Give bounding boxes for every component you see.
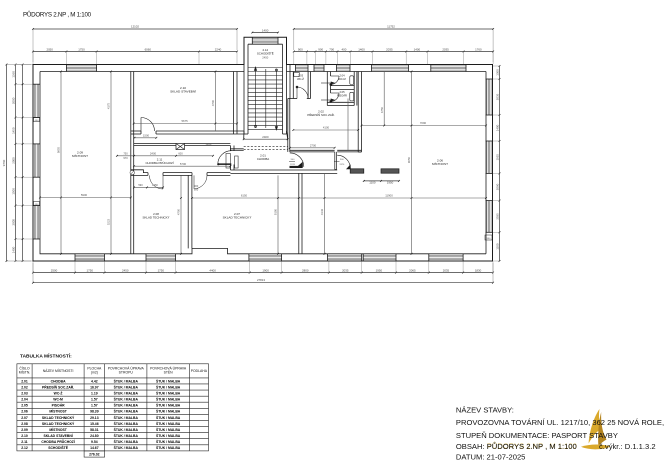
svg-text:2690: 2690 — [206, 143, 212, 147]
svg-text:2.04: 2.04 — [21, 398, 28, 402]
svg-text:58.31: 58.31 — [90, 428, 99, 432]
svg-text:MÍSTNOST: MÍSTNOST — [432, 162, 448, 166]
svg-text:ŠTUK / MALBA: ŠTUK / MALBA — [156, 415, 181, 420]
svg-text:2400: 2400 — [150, 151, 157, 155]
svg-text:2400: 2400 — [262, 135, 269, 139]
svg-text:2.06: 2.06 — [21, 410, 28, 414]
svg-text:1900: 1900 — [262, 268, 269, 272]
svg-text:2.03: 2.03 — [21, 391, 28, 395]
svg-text:2.03: 2.03 — [298, 74, 304, 78]
svg-text:1300: 1300 — [495, 69, 499, 76]
svg-text:ŠTUK / MALBA: ŠTUK / MALBA — [114, 409, 139, 414]
svg-text:STĚN: STĚN — [164, 370, 174, 375]
svg-text:1950: 1950 — [376, 268, 383, 272]
svg-text:SCHODIŠTĚ: SCHODIŠTĚ — [257, 51, 274, 56]
svg-text:2500: 2500 — [51, 268, 58, 272]
svg-text:276.02: 276.02 — [89, 453, 99, 457]
svg-text:2800: 2800 — [302, 268, 309, 272]
svg-text:15.46: 15.46 — [90, 422, 99, 426]
svg-text:2.07: 2.07 — [21, 416, 28, 420]
svg-text:ŠTUK / MALBA: ŠTUK / MALBA — [114, 439, 139, 444]
svg-text:9855: 9855 — [57, 146, 61, 153]
svg-text:1400: 1400 — [414, 47, 421, 51]
svg-text:16.97: 16.97 — [90, 385, 99, 389]
svg-text:ŠTUK / MALBA: ŠTUK / MALBA — [156, 403, 181, 408]
svg-text:2035: 2035 — [443, 268, 450, 272]
svg-text:4.42: 4.42 — [91, 379, 98, 383]
svg-text:2035: 2035 — [442, 47, 449, 51]
svg-text:2065: 2065 — [409, 268, 416, 272]
svg-text:2050: 2050 — [46, 47, 53, 51]
svg-text:ŠTUK / MALBA: ŠTUK / MALBA — [114, 384, 139, 389]
svg-text:č.výkr.: D.1.1.3.2: č.výkr.: D.1.1.3.2 — [599, 442, 656, 451]
svg-text:(m2): (m2) — [91, 371, 98, 375]
svg-text:STUPEŇ DOKUMENTACE: PASPORT ST: STUPEŇ DOKUMENTACE: PASPORT STAVBY — [456, 431, 618, 440]
svg-text:11900: 11900 — [385, 194, 393, 198]
svg-text:1400: 1400 — [495, 124, 499, 131]
svg-text:CHODBA: CHODBA — [51, 379, 66, 383]
svg-text:24.80: 24.80 — [90, 434, 99, 438]
svg-text:2.05: 2.05 — [21, 404, 28, 408]
svg-text:ŠTUK / MALBA: ŠTUK / MALBA — [156, 445, 181, 450]
svg-text:2.01: 2.01 — [21, 379, 28, 383]
svg-text:6150: 6150 — [241, 194, 248, 198]
svg-text:9.54: 9.54 — [91, 440, 98, 444]
svg-text:MÍSTNOST: MÍSTNOST — [49, 409, 67, 414]
svg-text:ŠTUK / MALBA: ŠTUK / MALBA — [114, 427, 139, 432]
svg-text:4143: 4143 — [320, 208, 324, 215]
svg-text:5675: 5675 — [181, 119, 188, 123]
svg-text:900: 900 — [318, 47, 323, 51]
svg-text:1100: 1100 — [495, 243, 499, 250]
svg-text:SKLAD TECHNICKÝ: SKLAD TECHNICKÝ — [223, 216, 252, 220]
svg-text:ŠTUK / MALBA: ŠTUK / MALBA — [156, 439, 181, 444]
svg-text:2700: 2700 — [310, 144, 317, 148]
svg-text:PŘEDSÍŇ SOC.ZAŘ.: PŘEDSÍŇ SOC.ZAŘ. — [307, 112, 335, 117]
svg-text:1260: 1260 — [11, 71, 15, 78]
svg-text:1760: 1760 — [475, 47, 482, 51]
svg-text:ŠTUK / MALBA: ŠTUK / MALBA — [114, 397, 139, 402]
svg-text:900: 900 — [298, 47, 303, 51]
svg-text:PŘEDSÍŇ SOC.ZAŘ.: PŘEDSÍŇ SOC.ZAŘ. — [42, 384, 74, 389]
svg-text:4700: 4700 — [211, 99, 215, 106]
svg-text:970: 970 — [123, 156, 128, 160]
svg-text:SKLAD STAVEBNÍ: SKLAD STAVEBNÍ — [43, 433, 73, 438]
svg-text:2060: 2060 — [495, 183, 499, 190]
svg-text:ŠTUK / MALBA: ŠTUK / MALBA — [156, 409, 181, 414]
svg-text:1925: 1925 — [495, 154, 499, 161]
svg-text:9760: 9760 — [2, 159, 6, 166]
svg-text:1970: 1970 — [290, 164, 296, 166]
svg-text:SKLAD TECHNICKÝ: SKLAD TECHNICKÝ — [42, 415, 75, 420]
svg-text:DATUM: 21-07-2025: DATUM: 21-07-2025 — [456, 453, 526, 462]
svg-text:29.13: 29.13 — [90, 416, 99, 420]
svg-text:ŠTUK / MALBA: ŠTUK / MALBA — [114, 445, 139, 450]
svg-text:2.05: 2.05 — [339, 90, 345, 94]
svg-text:WC-M: WC-M — [53, 398, 63, 402]
svg-text:ŠTUK / MALBA: ŠTUK / MALBA — [156, 427, 181, 432]
svg-text:MÍSTNOST: MÍSTNOST — [72, 154, 88, 158]
svg-text:ŠTUK / MALBA: ŠTUK / MALBA — [114, 415, 139, 420]
svg-text:PROVOZOVNA TOVÁRNÍ UL. 1217/10: PROVOZOVNA TOVÁRNÍ UL. 1217/10, 362 25 N… — [456, 418, 664, 427]
svg-text:WC-M: WC-M — [338, 77, 345, 81]
svg-text:2000: 2000 — [11, 219, 15, 226]
svg-text:2.10: 2.10 — [21, 434, 28, 438]
svg-text:1950: 1950 — [387, 181, 394, 185]
svg-text:2035: 2035 — [386, 47, 393, 51]
svg-text:OBSAH: PŮDORYS 2.NP , M 1:100: OBSAH: PŮDORYS 2.NP , M 1:100 — [456, 442, 577, 451]
svg-text:2.12: 2.12 — [21, 446, 28, 450]
svg-text:1.57: 1.57 — [91, 398, 98, 402]
svg-text:1.19: 1.19 — [91, 391, 98, 395]
svg-text:ŠTUK / MALBA: ŠTUK / MALBA — [114, 378, 139, 383]
svg-text:750: 750 — [123, 151, 128, 155]
svg-text:ŠTUK / MALBA: ŠTUK / MALBA — [114, 403, 139, 408]
svg-text:NÁZEV STAVBY:: NÁZEV STAVBY: — [456, 405, 514, 414]
svg-text:1500: 1500 — [11, 188, 15, 195]
svg-text:NÁZEV MÍSTNOSTI: NÁZEV MÍSTNOSTI — [43, 369, 74, 373]
svg-text:STROPU: STROPU — [119, 371, 134, 375]
svg-text:1100: 1100 — [369, 181, 376, 185]
svg-text:900: 900 — [194, 187, 199, 191]
svg-text:98.39: 98.39 — [90, 410, 99, 414]
svg-text:590: 590 — [138, 183, 143, 187]
svg-text:MÍSTN.: MÍSTN. — [19, 371, 31, 375]
svg-text:SKLAD TECHNICKÝ: SKLAD TECHNICKÝ — [42, 421, 75, 426]
svg-text:700: 700 — [329, 47, 334, 51]
svg-text:4400: 4400 — [209, 268, 216, 272]
svg-text:1970: 1970 — [339, 164, 345, 166]
svg-text:1450: 1450 — [152, 183, 158, 187]
svg-text:7090: 7090 — [420, 121, 427, 125]
svg-text:2.11: 2.11 — [21, 440, 28, 444]
svg-text:2000: 2000 — [11, 97, 15, 104]
svg-text:6060: 6060 — [145, 47, 152, 51]
svg-text:2450: 2450 — [262, 55, 268, 59]
svg-text:ŠTUK / MALBA: ŠTUK / MALBA — [156, 390, 181, 395]
svg-text:CHODBA PRŮCHOZÍ: CHODBA PRŮCHOZÍ — [145, 160, 173, 165]
svg-text:2450: 2450 — [122, 268, 129, 272]
svg-text:4175: 4175 — [107, 102, 111, 109]
svg-text:CHODBA: CHODBA — [257, 157, 269, 161]
svg-text:SKLAD STAVEBNÍ: SKLAD STAVEBNÍ — [170, 90, 196, 94]
svg-text:2240: 2240 — [215, 47, 222, 51]
svg-text:ŠTUK / MALBA: ŠTUK / MALBA — [156, 384, 181, 389]
svg-text:2035: 2035 — [495, 213, 499, 220]
svg-text:ŠTUK / MALBA: ŠTUK / MALBA — [114, 421, 139, 426]
svg-text:2035: 2035 — [495, 93, 499, 100]
svg-text:1450: 1450 — [11, 127, 15, 134]
svg-text:2.09: 2.09 — [21, 428, 28, 432]
svg-text:PŮDORYS 2.NP , M 1:100: PŮDORYS 2.NP , M 1:100 — [23, 11, 92, 18]
svg-text:ŠTUK / MALBA: ŠTUK / MALBA — [156, 433, 181, 438]
svg-text:11752: 11752 — [387, 24, 395, 28]
svg-text:12102: 12102 — [131, 24, 139, 28]
svg-text:5900: 5900 — [81, 193, 88, 197]
svg-text:2.02: 2.02 — [21, 385, 28, 389]
svg-text:PISOÁR: PISOÁR — [337, 94, 347, 98]
svg-text:SKLAD TECHNICKÝ: SKLAD TECHNICKÝ — [143, 216, 170, 220]
svg-text:ŠTUK / MALBA: ŠTUK / MALBA — [156, 378, 181, 383]
svg-text:PODLAHA: PODLAHA — [191, 369, 208, 373]
svg-text:600: 600 — [178, 151, 183, 155]
svg-text:6750: 6750 — [380, 106, 384, 113]
svg-text:1750: 1750 — [87, 268, 94, 272]
svg-text:1.57: 1.57 — [91, 404, 98, 408]
svg-text:WC-Ž: WC-Ž — [54, 390, 63, 395]
svg-text:400: 400 — [342, 47, 347, 51]
svg-text:ŠTUK / MALBA: ŠTUK / MALBA — [156, 397, 181, 402]
svg-text:ŠTUK / MALBA: ŠTUK / MALBA — [156, 421, 181, 426]
svg-text:1830: 1830 — [475, 268, 482, 272]
svg-text:1400: 1400 — [262, 28, 269, 32]
svg-text:ŠTUK / MALBA: ŠTUK / MALBA — [114, 390, 139, 395]
svg-text:4100: 4100 — [323, 126, 330, 130]
svg-text:CHODBA PRŮCHOZÍ: CHODBA PRŮCHOZÍ — [41, 439, 75, 444]
svg-text:1400: 1400 — [11, 246, 15, 253]
svg-text:9050: 9050 — [407, 156, 411, 163]
svg-text:SCHODIŠTĚ: SCHODIŠTĚ — [48, 445, 69, 450]
svg-text:PISOÁR: PISOÁR — [52, 403, 66, 408]
svg-text:2.08: 2.08 — [21, 422, 28, 426]
svg-text:1750: 1750 — [78, 47, 85, 51]
svg-text:1500: 1500 — [143, 134, 150, 138]
svg-text:2.04: 2.04 — [339, 74, 345, 78]
svg-text:9190: 9190 — [274, 208, 278, 215]
svg-text:2035: 2035 — [342, 268, 349, 272]
svg-text:4700: 4700 — [177, 208, 181, 215]
svg-text:1400: 1400 — [358, 47, 365, 51]
svg-text:ŠTUK / MALBA: ŠTUK / MALBA — [114, 433, 139, 438]
svg-text:MÍSTNOST: MÍSTNOST — [49, 427, 67, 432]
svg-text:5223: 5223 — [107, 218, 111, 225]
svg-text:2000: 2000 — [11, 157, 15, 164]
svg-text:5700: 5700 — [180, 162, 187, 166]
svg-text:14.67: 14.67 — [90, 446, 99, 450]
svg-text:27813: 27813 — [257, 278, 265, 282]
svg-text:1750: 1750 — [158, 268, 165, 272]
